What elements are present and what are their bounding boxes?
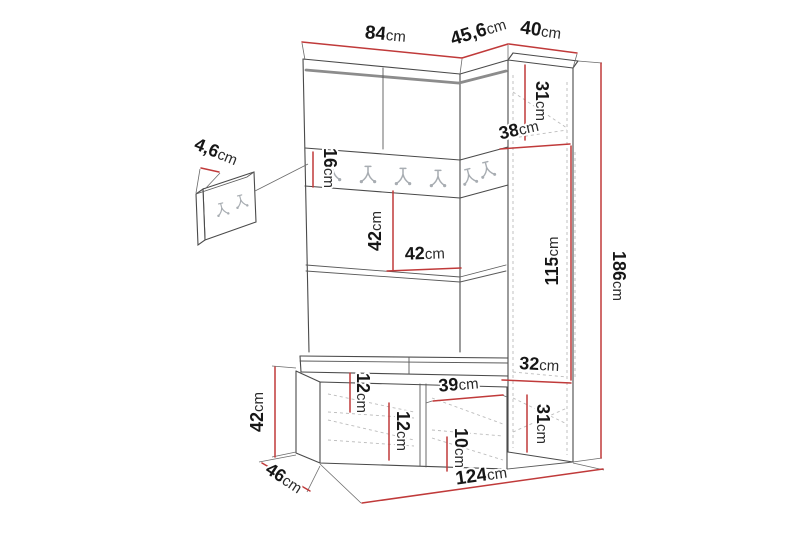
coat-hook-icon	[460, 167, 479, 186]
cabinet-top-back-edge	[513, 53, 578, 61]
cabinet-top-front-edge	[508, 60, 573, 68]
dim-line-32	[502, 380, 571, 383]
dim-12cm-left: 12cm	[393, 411, 413, 451]
height-extensions	[573, 61, 602, 462]
main-left-edge	[303, 59, 309, 352]
dim-10cm: 10cm	[451, 428, 471, 468]
bench-left-side-face	[296, 371, 320, 463]
diagram-canvas: 84cm 45,6cm 40cm 31cm 38cm 16cm 42cm 42c…	[0, 0, 800, 533]
bench-door-divider	[420, 384, 426, 467]
dim-45-6cm: 45,6cm	[448, 13, 509, 50]
dim-42cm-bench: 42cm	[247, 392, 267, 432]
dim-186cm: 186cm	[609, 251, 629, 301]
dim-16cm: 16cm	[320, 148, 340, 188]
dim-31cm-top: 31cm	[532, 81, 552, 121]
dim-84cm: 84cm	[364, 22, 407, 47]
dim-line-38	[500, 144, 570, 149]
coat-hook-icon	[430, 170, 447, 187]
dim-38cm: 38cm	[497, 115, 541, 143]
panel-callout-line	[255, 164, 308, 191]
furniture-dimension-diagram: 84cm 45,6cm 40cm 31cm 38cm 16cm 42cm 42c…	[0, 0, 800, 533]
dim-31cm-bottom: 31cm	[533, 404, 553, 444]
corner-shelf-front	[460, 265, 506, 277]
dim-4-6cm: 4,6cm	[192, 134, 241, 169]
cabinet-bottom-edge	[508, 452, 573, 462]
middle-shelf-thickness	[306, 271, 460, 282]
coat-hook-icon	[395, 168, 412, 185]
coat-hook-rail-hooks	[325, 160, 497, 187]
dim-line-40	[509, 44, 577, 53]
corner-shelf-thickness	[460, 271, 506, 282]
cushion-seam	[300, 361, 508, 363]
corner-section	[459, 60, 508, 282]
bench-right-diagonal-hidden-1	[432, 398, 503, 424]
cabinet-top-side-edges	[508, 53, 578, 68]
cushion-left-end	[300, 356, 301, 372]
dim-line-4-6	[201, 168, 219, 172]
bench-left-diagonal-hidden	[328, 394, 414, 412]
dim-42cm-vertical: 42cm	[365, 211, 385, 251]
dim-39cm: 39cm	[438, 372, 480, 395]
dim-115cm: 115cm	[542, 236, 562, 285]
dim-46cm: 46cm	[262, 459, 306, 498]
dim-32cm: 32cm	[519, 353, 560, 375]
bench-to-cabinet-floor-edge	[507, 462, 573, 469]
wall-hook-panel	[196, 164, 308, 245]
dim-line-45-6	[462, 44, 508, 58]
middle-shelf-front	[306, 265, 460, 277]
cushion-top-edge	[300, 356, 508, 358]
dim-40cm: 40cm	[519, 17, 563, 44]
panel-side-face	[196, 189, 205, 245]
corner-rail-bottom	[460, 185, 508, 198]
coat-hook-icon	[360, 166, 377, 183]
dim-42cm-horizontal: 42cm	[404, 242, 445, 263]
dim-line-42-horizontal	[387, 268, 461, 271]
coat-hook-icon	[478, 160, 497, 179]
dimension-labels: 84cm 45,6cm 40cm 31cm 38cm 16cm 42cm 42c…	[192, 13, 629, 497]
dim-12cm-top: 12cm	[353, 373, 373, 413]
main-unit	[303, 59, 460, 352]
dim-line-39	[433, 395, 503, 401]
